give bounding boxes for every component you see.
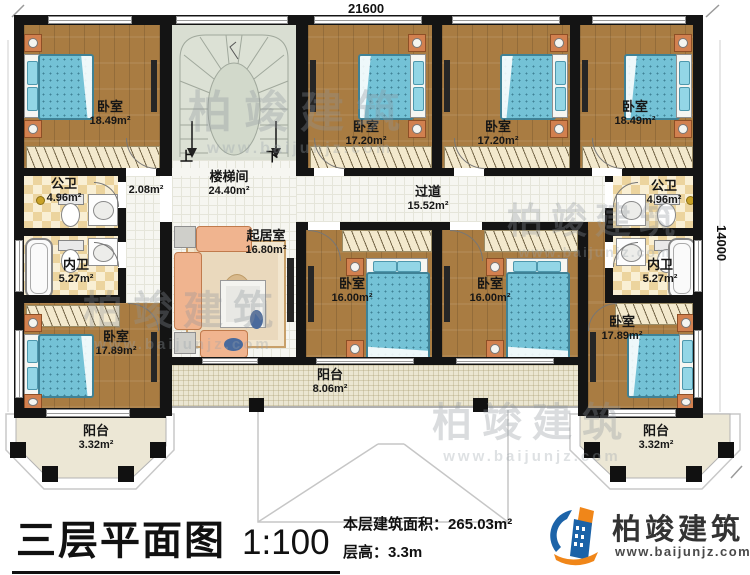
tv-bedroom-tr	[582, 60, 588, 112]
door-gap-nook	[588, 222, 605, 230]
nightstand	[408, 34, 426, 52]
window-bedroom-m1-south	[316, 358, 414, 364]
door-gap-bedroom-m1	[308, 222, 340, 230]
nightstand	[674, 120, 692, 138]
label-bath-public-left: 公卫4.96m²	[47, 177, 82, 204]
window-bedroom-bl-south	[46, 409, 130, 417]
door-gap-bath-private-left	[118, 242, 126, 268]
label-corridor: 过道15.52m²	[408, 185, 449, 212]
label-balcony-right: 阳台3.32m²	[639, 424, 674, 451]
tv-living	[287, 258, 294, 322]
door-gap-bedroom-m2	[450, 222, 482, 230]
wall-bathL-mid	[14, 228, 126, 236]
window-stairwell-north	[176, 16, 288, 24]
toilet-bowl	[61, 203, 80, 227]
window-bedroom-bl-west	[15, 330, 23, 398]
wall-bathR-mid	[613, 228, 703, 236]
nightstand	[346, 258, 364, 276]
bed-headboard	[410, 54, 426, 118]
window-bedroom-t2-north	[452, 16, 560, 24]
label-bath-private-left: 内卫5.27m²	[59, 258, 94, 285]
floor-height-line: 层高：3.3m	[343, 541, 422, 562]
bed-mattress	[500, 54, 556, 120]
stairs-up-label: 上	[180, 146, 193, 165]
wall-stair-west	[160, 15, 172, 176]
room-floor-corridor	[296, 176, 613, 222]
bed-bedroom-bl	[24, 314, 90, 410]
label-bedroom-m2: 卧室16.00m²	[470, 277, 511, 304]
room-floor-entry-nook	[588, 222, 605, 303]
nightstand	[486, 258, 504, 276]
label-landing: 2.08m²	[129, 184, 164, 196]
bathtub-left	[25, 238, 53, 299]
bed-bedroom-m1	[346, 258, 428, 358]
wall-bathL-south	[14, 295, 126, 303]
door-gap-bedroom-t2	[454, 168, 484, 176]
dimension-right: 14000	[714, 225, 729, 269]
bed-bedroom-tl	[24, 34, 90, 136]
bed-mattress	[38, 54, 94, 120]
tv-bedroom-m1	[308, 266, 314, 322]
room-floor-balcony-center	[168, 365, 585, 408]
window-bath-private-right	[694, 240, 702, 292]
tv-bedroom-t2	[444, 60, 450, 112]
wall-living-east	[296, 222, 306, 365]
label-living: 起居室16.80m²	[246, 229, 287, 256]
stairs-down-label: 下	[266, 146, 279, 165]
wardrobe-bedroom-m1	[342, 230, 432, 252]
label-bedroom-bl: 卧室17.89m²	[96, 330, 137, 357]
wall-bathR-south	[613, 295, 703, 303]
window-bedroom-m2-south	[456, 358, 554, 364]
tv-bedroom-br	[590, 332, 596, 382]
label-bedroom-tr: 卧室18.49m²	[615, 100, 656, 127]
label-bath-private-right: 内卫5.27m²	[643, 258, 678, 285]
bed-bedroom-m2	[486, 258, 568, 358]
bed-headboard	[552, 54, 568, 118]
bed-mattress	[506, 272, 570, 360]
tv-bedroom-tl	[151, 60, 157, 112]
label-bedroom-m1: 卧室16.00m²	[332, 277, 373, 304]
wall-m2-east	[578, 222, 588, 416]
floor-plan-page: 卧室18.49m² 卧室17.20m² 卧室17.20m² 卧室18.49m² …	[0, 0, 750, 575]
sofa-side-table	[174, 226, 196, 248]
window-bedroom-br-east	[694, 330, 702, 398]
wall-t2-tr	[570, 15, 580, 176]
brand-name: 柏竣建筑	[612, 506, 744, 548]
label-balcony-center: 阳台8.06m²	[313, 368, 348, 395]
nightstand	[486, 340, 504, 358]
nightstand	[550, 120, 568, 138]
balcony-pillar	[473, 398, 488, 412]
tv-bedroom-bl	[151, 332, 157, 382]
dimension-top: 21600	[348, 1, 384, 16]
label-bedroom-t2: 卧室17.20m²	[478, 120, 519, 147]
door-living-balcony	[202, 358, 258, 364]
brand-logo-icon	[546, 502, 610, 568]
wall-stair-east	[296, 15, 308, 176]
label-bedroom-t1: 卧室17.20m²	[346, 120, 387, 147]
toilet-bowl	[657, 203, 676, 227]
plan-title-block: 三层平面图 1:100	[12, 508, 340, 574]
nightstand	[550, 34, 568, 52]
bed-mattress	[627, 334, 683, 398]
door-gap-bath-public-left	[118, 182, 126, 208]
sofa-top	[196, 226, 252, 252]
label-bedroom-br: 卧室17.89m²	[602, 315, 643, 342]
nightstand	[674, 34, 692, 52]
page-title: 三层平面图	[16, 508, 226, 566]
window-bath-private-left	[15, 240, 23, 292]
wall-m1-m2	[432, 222, 442, 365]
bed-mattress	[38, 334, 94, 398]
wall-living-west	[160, 222, 172, 416]
door-gap-bedroom-tr	[592, 168, 622, 176]
staircase-drawing	[172, 25, 296, 160]
nightstand	[24, 314, 42, 332]
door-gap-bath-public-right	[605, 182, 613, 208]
sofa-side-table	[174, 332, 196, 354]
label-bedroom-tl: 卧室18.49m²	[90, 100, 131, 127]
brand-url: www.baijunjz.com	[615, 544, 750, 559]
label-stairwell: 楼梯间24.40m²	[209, 170, 250, 197]
door-gap-bedroom-t1	[314, 168, 344, 176]
bed-mattress	[366, 272, 430, 360]
door-gap-bath-private-right	[605, 242, 613, 268]
tv-bedroom-m2	[444, 266, 450, 322]
nightstand	[346, 340, 364, 358]
person-figure	[224, 338, 243, 351]
plan-scale: 1:100	[242, 523, 330, 563]
floor-area-line: 本层建筑面积：265.03m²	[343, 513, 512, 534]
tv-bedroom-t1	[310, 60, 316, 112]
label-bath-public-right: 公卫4.96m²	[647, 179, 682, 206]
wall-t1-t2	[432, 15, 442, 176]
sofa-main	[174, 252, 202, 330]
bed-mattress	[358, 54, 414, 120]
bed-headboard	[676, 54, 692, 118]
nightstand	[24, 34, 42, 52]
window-bedroom-br-south	[608, 409, 676, 417]
nightstand	[24, 120, 42, 138]
window-bedroom-tr-north	[592, 16, 686, 24]
balcony-pillar	[249, 398, 264, 412]
nightstand	[408, 120, 426, 138]
wardrobe-bedroom-m2	[484, 230, 578, 252]
window-bedroom-tl-north	[48, 16, 132, 24]
door-gap-bedroom-tl	[126, 168, 156, 176]
person-figure	[250, 310, 263, 329]
label-balcony-left: 阳台3.32m²	[79, 424, 114, 451]
faucet-knob	[36, 196, 45, 205]
window-bedroom-t1-north	[314, 16, 422, 24]
